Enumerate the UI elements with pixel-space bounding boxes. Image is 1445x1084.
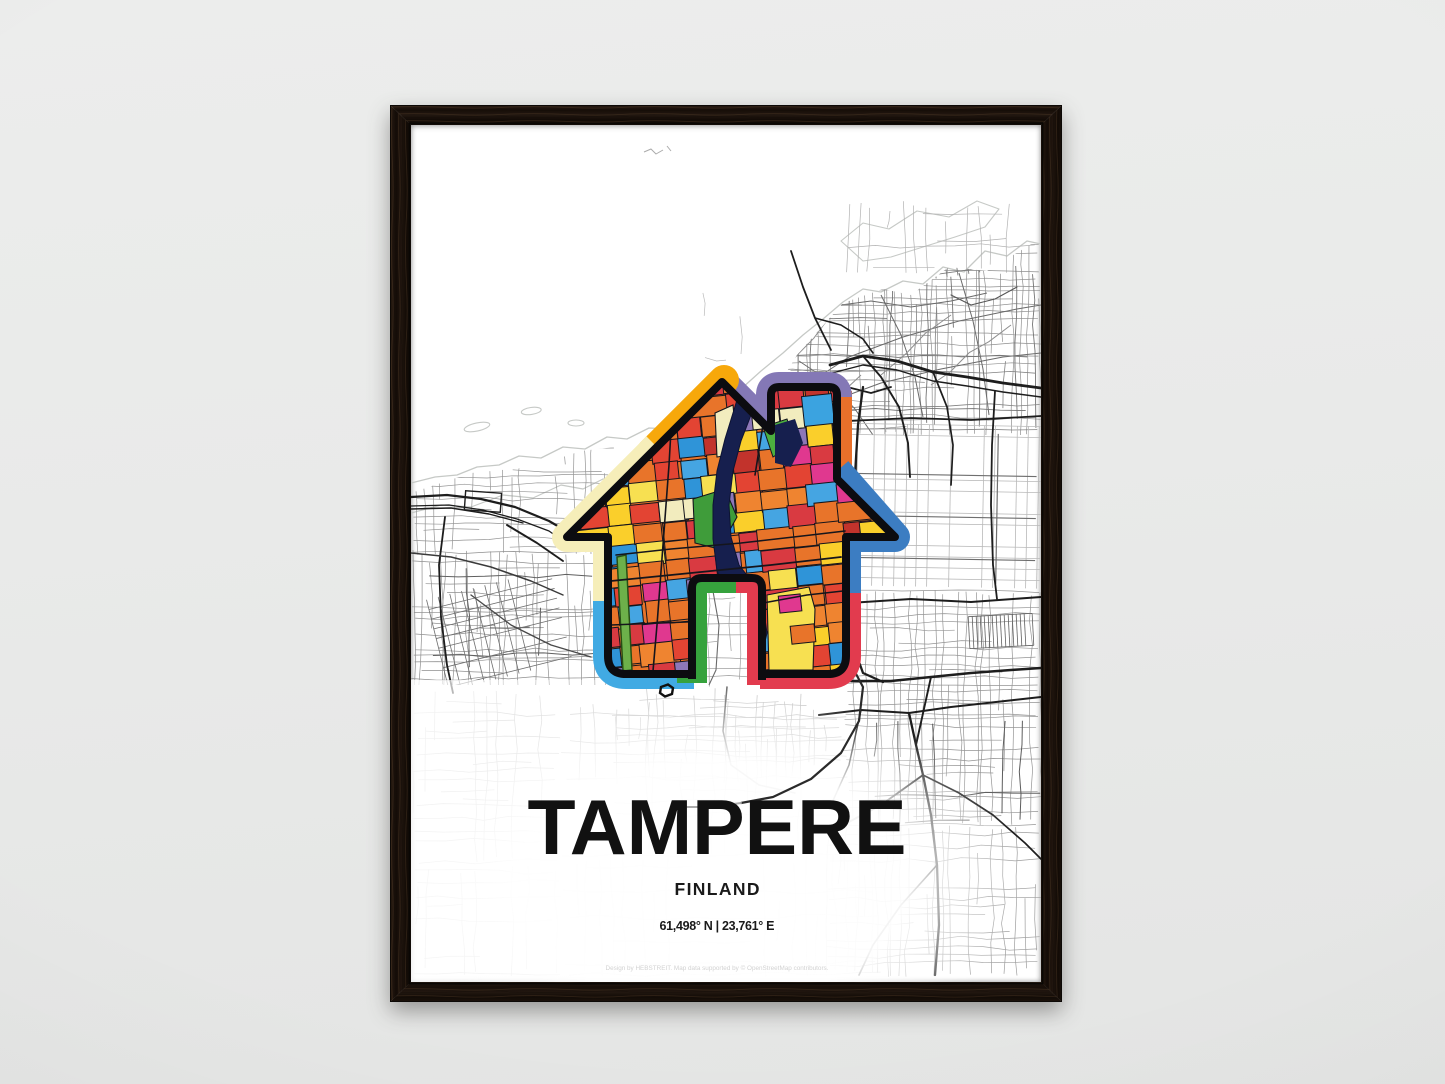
svg-text:Design by HEBSTREIT. Map data: Design by HEBSTREIT. Map data supported … bbox=[606, 964, 829, 972]
svg-text:TAMPERE: TAMPERE bbox=[528, 783, 907, 871]
svg-text:FINLAND: FINLAND bbox=[675, 879, 760, 899]
svg-text:61,498° N | 23,761° E: 61,498° N | 23,761° E bbox=[660, 919, 775, 933]
